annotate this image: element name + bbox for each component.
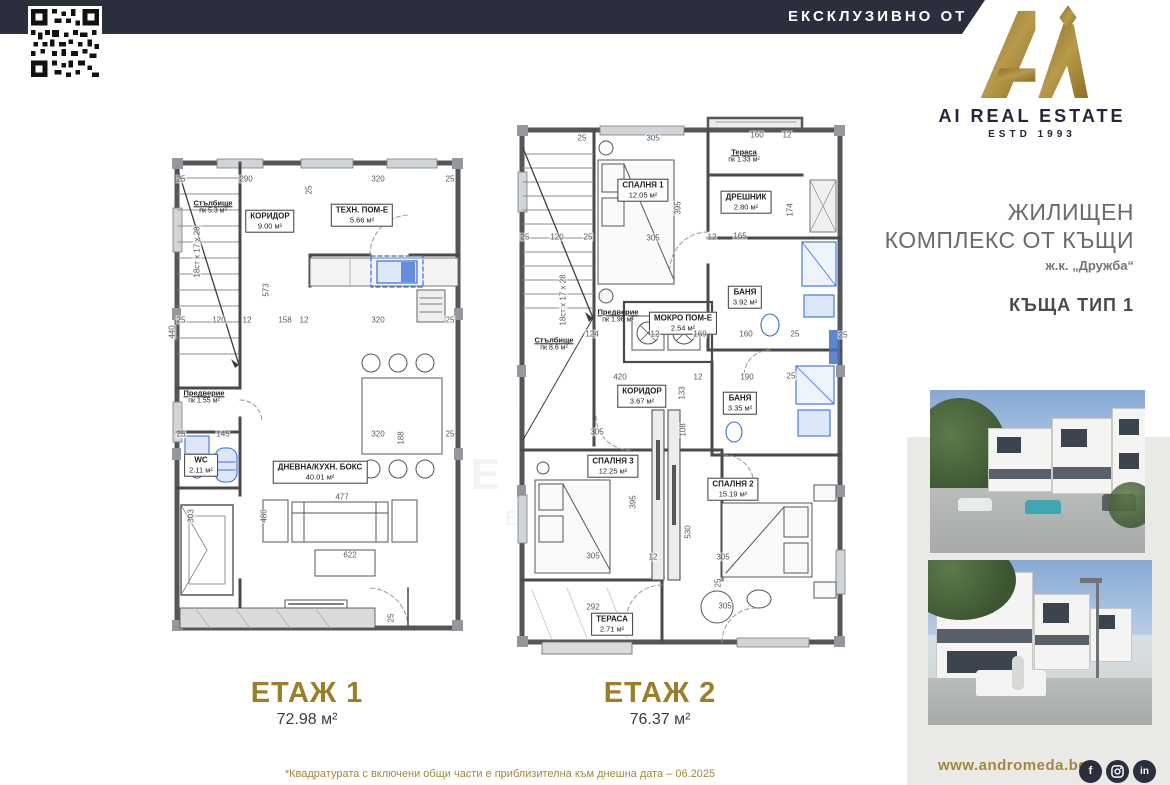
street-lamp — [1096, 582, 1099, 678]
dim-label: 160 — [738, 330, 753, 339]
dim-label: 120 — [549, 233, 564, 242]
dim-label-stair-note: 18ст х 17 х 28 — [193, 225, 202, 278]
room-label-corridor-2: КОРИДОР3.67 м² — [617, 385, 666, 408]
dim-label: 108 — [679, 422, 688, 437]
floor1-area: 72.98 м² — [251, 711, 364, 729]
project-title-line1: ЖИЛИЩЕН — [885, 198, 1134, 226]
car-teal — [1025, 500, 1061, 514]
dim-label: 25 — [445, 175, 456, 184]
room-label-bedroom3: СПАЛНЯ 312.25 м² — [587, 455, 638, 478]
dim-label: 303 — [187, 508, 196, 523]
room-label-closet: ДРЕШНИК2.80 м² — [721, 191, 772, 214]
dim-label: 174 — [786, 202, 795, 217]
floor1-title-block: ЕТАЖ 1 72.98 м² — [251, 678, 364, 729]
floor2-title: ЕТАЖ 2 — [604, 678, 717, 708]
car-white — [976, 670, 1046, 696]
dim-label: 12 — [242, 316, 253, 325]
dim-label: 420 — [612, 373, 627, 382]
facebook-icon[interactable]: f — [1079, 760, 1102, 783]
dim-label: 158 — [277, 316, 292, 325]
dim-label: 145 — [215, 430, 230, 439]
dim-label: 25 — [176, 430, 187, 439]
photo-render-houses-closeup — [928, 560, 1152, 725]
dim-label: 25 — [176, 175, 187, 184]
room-label-vestibule-2: Предвериепк 1.96 м² — [598, 307, 639, 324]
project-title-line2: КОМПЛЕКС ОТ КЪЩИ — [885, 226, 1134, 254]
room-label-wc: WC2.11 м² — [184, 454, 218, 477]
street-lamp-arm — [1080, 578, 1102, 583]
dim-label: 25 — [790, 330, 801, 339]
dim-label: 573 — [262, 282, 271, 297]
dim-label: 320 — [370, 430, 385, 439]
dim-label: 477 — [334, 493, 349, 502]
photo-render-street-view — [930, 390, 1145, 553]
dim-label: 480 — [260, 508, 269, 523]
dim-label: 12 — [299, 316, 310, 325]
dim-label: 124 — [584, 330, 599, 339]
dim-label: 133 — [678, 385, 687, 400]
dim-label: 25 — [305, 185, 314, 196]
room-label-bedroom2: СПАЛНЯ 215.19 м² — [707, 478, 758, 501]
dim-label-stair-note: 18ст х 17 х 28 — [559, 273, 568, 326]
room-label-tech-room: ТЕХН. ПОМ-Е5.66 м² — [331, 204, 393, 227]
dim-label: 305 — [715, 553, 730, 562]
banner-text: ЕКСКЛУЗИВНО ОТ — [788, 8, 968, 25]
dim-label: 160 — [749, 131, 764, 140]
project-location: ж.к. „Дружба“ — [885, 258, 1134, 273]
dim-label: 120 — [211, 316, 226, 325]
person — [1012, 656, 1024, 690]
dim-label: 530 — [684, 524, 693, 539]
dim-label: 25 — [583, 233, 594, 242]
room-label-terrace-top: Терасапк 1.33 м² — [728, 147, 760, 164]
dim-label: 169 — [692, 330, 707, 339]
room-label-terrace-bottom: ТЕРАСА2.71 м² — [591, 613, 633, 636]
dim-label: 165 — [732, 232, 747, 241]
room-label-bedroom1: СПАЛНЯ 112.05 м² — [617, 179, 668, 202]
dim-label: 12 — [693, 373, 704, 382]
room-label-living-kitchen: ДНЕВНА/КУХН. БОКС40.01 м² — [273, 461, 368, 484]
dim-label: 12 — [650, 330, 661, 339]
dim-label: 305 — [717, 602, 732, 611]
room-label-vestibule-1: Предвериепк 1.55 м² — [184, 388, 225, 405]
floor1-title: ЕТАЖ 1 — [251, 678, 364, 708]
dim-label: 320 — [370, 175, 385, 184]
dim-label: 190 — [739, 373, 754, 382]
linkedin-icon[interactable]: in — [1133, 760, 1156, 783]
dim-label: 25 — [387, 613, 396, 624]
website-link[interactable]: www.andromeda.bg — [938, 757, 1078, 774]
dim-label: 622 — [342, 551, 357, 560]
dim-label: 12 — [707, 233, 718, 242]
house-type-label: КЪЩА ТИП 1 — [885, 295, 1134, 316]
footnote: *Квадратурата с включени общи части е пр… — [160, 768, 840, 780]
floor-plan-1 — [165, 150, 470, 670]
house-block — [988, 428, 1052, 492]
dim-label: 25 — [577, 134, 588, 143]
room-label-stairs-2: Стълбищепк 8.6 м² — [535, 335, 574, 352]
dim-label: 25 — [520, 233, 531, 242]
dim-label: 320 — [370, 316, 385, 325]
dim-label: 25 — [786, 372, 797, 381]
dim-label: 25 — [445, 430, 456, 439]
dim-label: 395 — [629, 494, 638, 509]
ai-real-estate-logo-icon — [975, 4, 1090, 102]
dim-label: 290 — [238, 175, 253, 184]
room-label-corridor-1: КОРИДОР9.00 м² — [245, 210, 294, 233]
brochure-page: ЕКСКЛУЗИВНО ОТ — [0, 0, 1170, 785]
dim-label: 305 — [585, 552, 600, 561]
dim-label: 188 — [397, 430, 406, 445]
dim-label: 440 — [168, 324, 177, 339]
car-white — [958, 498, 992, 511]
room-label-stairs-1: Стълбищепк 5.3 м² — [194, 198, 233, 215]
dim-label: 395 — [674, 200, 683, 215]
dim-label: 305 — [645, 134, 660, 143]
qr-code-graphic — [31, 9, 99, 77]
room-label-bath1: БАНЯ3.92 м² — [728, 286, 762, 309]
dim-label: 25 — [714, 578, 723, 589]
dim-label: 25 — [838, 331, 849, 340]
dim-label: 12 — [648, 553, 659, 562]
qr-code[interactable] — [28, 6, 102, 80]
logo-estd: ESTD 1993 — [902, 129, 1162, 140]
floor2-title-block: ЕТАЖ 2 76.37 м² — [604, 678, 717, 729]
dim-label: 25 — [445, 316, 456, 325]
project-title-block: ЖИЛИЩЕН КОМПЛЕКС ОТ КЪЩИ ж.к. „Дружба“ К… — [885, 198, 1134, 316]
dim-label: 292 — [585, 603, 600, 612]
house-block — [1052, 418, 1112, 494]
room-label-bath2: БАНЯ3.35 м² — [723, 392, 757, 415]
dim-label: 305 — [645, 234, 660, 243]
dim-label: 305 — [589, 428, 604, 437]
dim-label: 12 — [782, 131, 793, 140]
logo-wordmark: AI REAL ESTATE — [902, 106, 1162, 127]
instagram-icon[interactable] — [1106, 760, 1129, 783]
house-block — [1034, 594, 1090, 670]
dim-label: 25 — [176, 316, 187, 325]
floor2-area: 76.37 м² — [604, 711, 717, 729]
